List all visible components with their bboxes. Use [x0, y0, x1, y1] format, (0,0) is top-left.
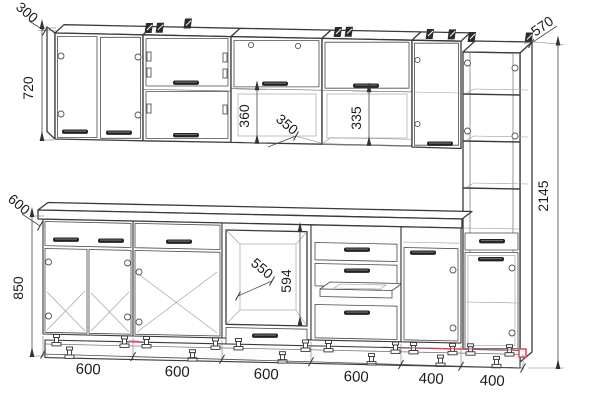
dim-label-width-3: 600 [253, 365, 279, 383]
dim-label-counter-depth: 600 [5, 191, 33, 218]
dim-label-wall-depth: 300 [13, 0, 41, 26]
base-cabinet-oven [222, 223, 311, 346]
wall-cabinet-5 [412, 32, 470, 149]
tall-cabinet-drawer [465, 233, 518, 250]
base-cabinet-drawers [311, 225, 402, 342]
dim-label-oven-height: 594 [278, 269, 294, 293]
wall-cabinet-4 [322, 30, 421, 146]
dim-label-flip-height: 360 [236, 104, 252, 128]
drawing-canvas: 300 720 600 850 360 350 335 [0, 0, 600, 402]
tall-cabinet-door [465, 253, 518, 349]
dim-label-total-height: 2145 [535, 180, 551, 211]
dim-label-width-5: 400 [418, 370, 444, 388]
base-cabinet-2 [133, 221, 222, 338]
dim-label-base-height: 850 [10, 276, 26, 300]
dim-label-width-1: 600 [75, 360, 101, 378]
base-cabinet-row [43, 219, 461, 346]
tall-cabinet [463, 41, 532, 362]
dimension-total-height: 2145 [528, 42, 564, 368]
dimension-counter-depth: 600 [5, 191, 42, 231]
wall-cabinet-2 [143, 27, 240, 143]
open-drawer [320, 282, 402, 298]
base-cabinet-5 [401, 227, 461, 343]
kitchen-technical-drawing: 300 720 600 850 360 350 335 [0, 0, 600, 402]
dimension-base-height: 850 [10, 216, 48, 356]
dim-label-width-2: 600 [164, 363, 190, 381]
dim-label-wall-height: 720 [20, 76, 36, 100]
dim-label-niche-height: 335 [348, 106, 364, 130]
wall-cabinet-1 [47, 25, 152, 141]
base-cabinet-1 [43, 219, 133, 336]
dim-label-width-4: 600 [343, 368, 369, 386]
dim-label-width-6: 400 [479, 372, 505, 390]
